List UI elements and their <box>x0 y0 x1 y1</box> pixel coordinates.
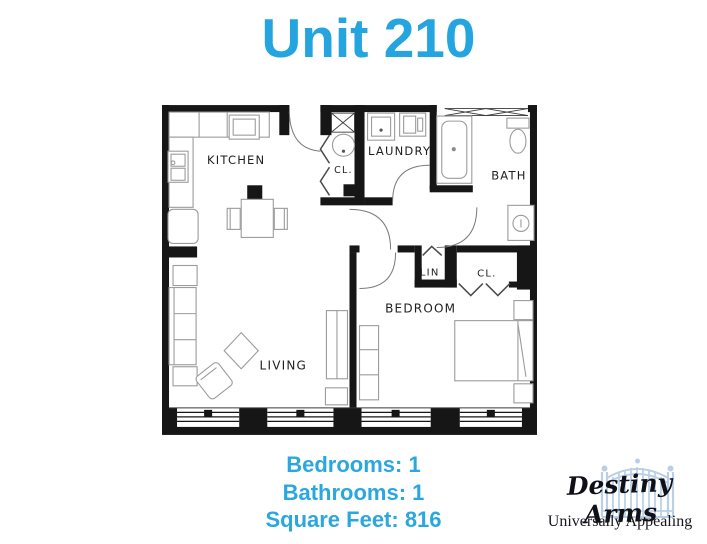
room-label-laundry: LAUNDRY <box>368 144 431 158</box>
slide: Unit 210 <box>0 0 707 544</box>
brand-tagline: Universally Appealing <box>533 513 707 531</box>
room-label-utility-closet: CL. <box>334 165 353 176</box>
kitchen-fixtures <box>168 112 287 243</box>
room-label-bath: BATH <box>491 168 526 182</box>
brand-logo: Destiny Arms Universally Appealing <box>533 452 707 542</box>
room-label-bedroom-closet: CL. <box>477 269 496 280</box>
room-label-bedroom: BEDROOM <box>385 302 456 316</box>
living-fixtures <box>169 265 347 404</box>
room-label-kitchen: KITCHEN <box>207 153 265 167</box>
floor-plan: KITCHEN CL. LAUNDRY BATH LIN CL. BEDROOM… <box>159 99 545 437</box>
bedroom-fixtures <box>360 301 533 403</box>
room-label-linen: LIN <box>420 268 440 279</box>
page-title: Unit 210 <box>0 6 707 70</box>
room-label-living: LIVING <box>260 359 308 373</box>
